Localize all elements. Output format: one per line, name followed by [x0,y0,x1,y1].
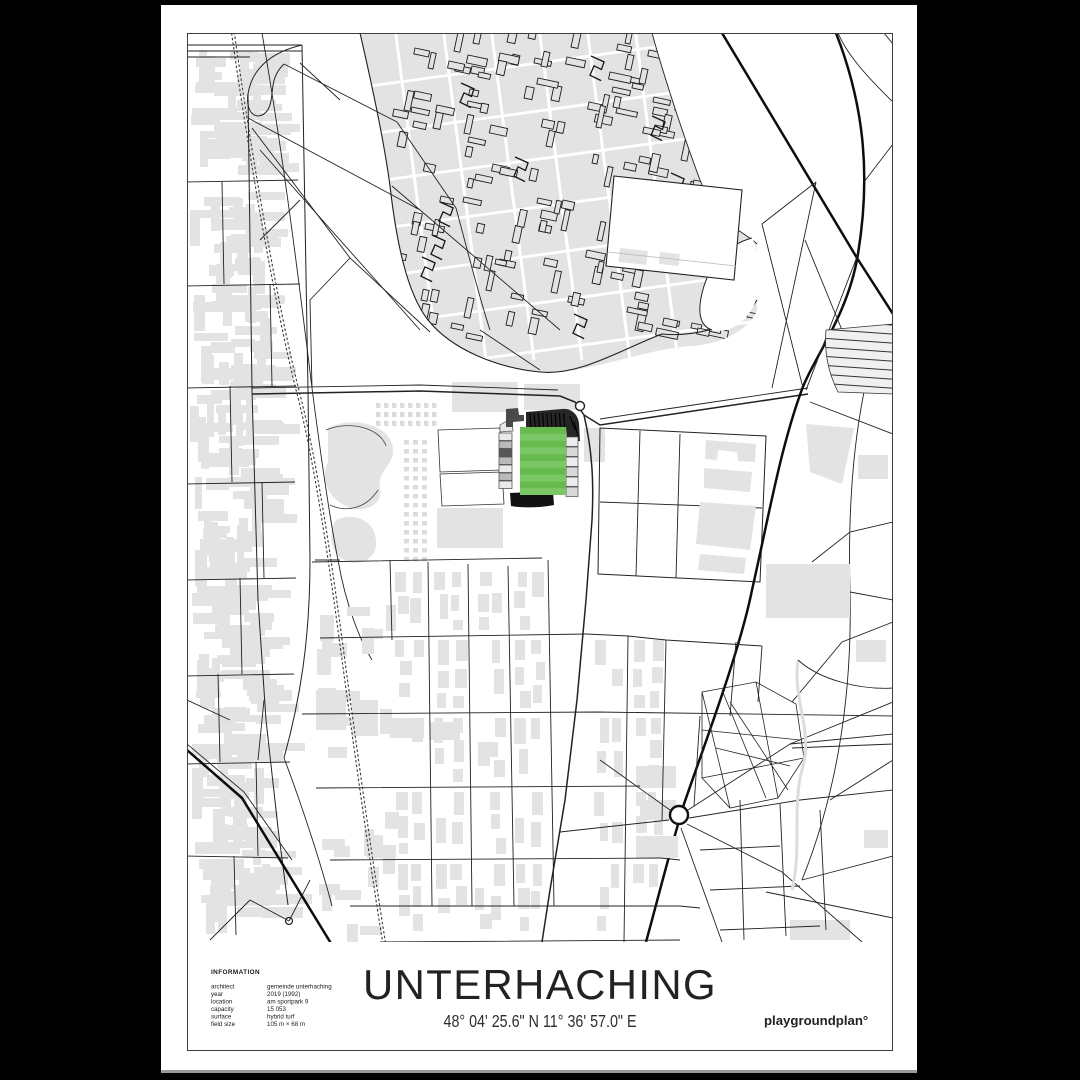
svg-text:INFORMATION: INFORMATION [211,969,260,976]
svg-text:capacity: capacity [211,1006,235,1013]
svg-text:surface: surface [211,1014,232,1021]
svg-text:15 053: 15 053 [267,1006,286,1013]
svg-text:location: location [211,999,233,1006]
svg-text:105 m × 68 m: 105 m × 68 m [267,1021,305,1028]
svg-text:architect: architect [211,984,235,991]
svg-text:48° 04' 25.6" N 11° 36' 57.0": 48° 04' 25.6" N 11° 36' 57.0" E [444,1011,637,1031]
svg-text:hybrid turf: hybrid turf [267,1014,295,1021]
svg-text:UNTERHACHING: UNTERHACHING [363,961,717,1008]
svg-text:gemeinde unterhaching: gemeinde unterhaching [267,984,332,991]
svg-text:field size: field size [211,1021,236,1028]
svg-text:year: year [211,991,223,998]
svg-text:2019 (1992): 2019 (1992) [267,991,300,998]
svg-text:am sportpark 9: am sportpark 9 [267,999,309,1006]
svg-text:playgroundplan°: playgroundplan° [764,1013,868,1028]
